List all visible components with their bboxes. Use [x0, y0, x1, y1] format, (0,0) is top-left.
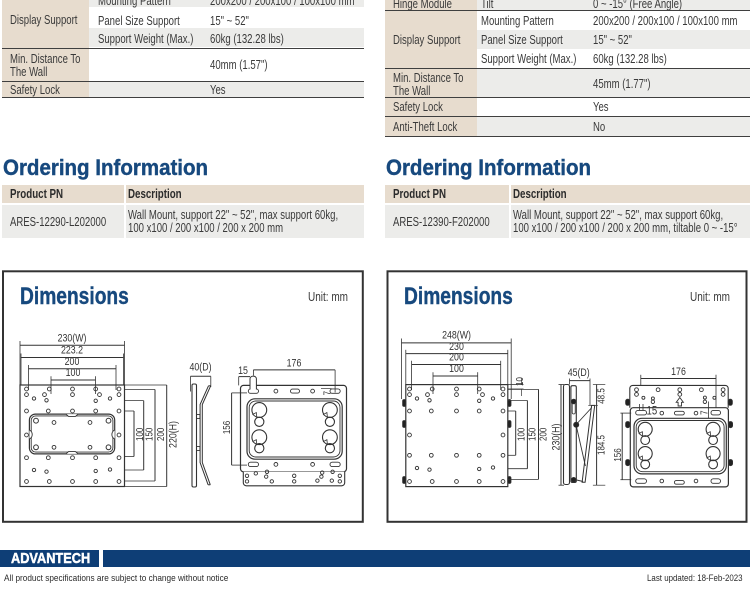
svg-text:48.5: 48.5 [596, 388, 607, 404]
svg-text:15: 15 [238, 365, 248, 377]
svg-text:156: 156 [612, 448, 623, 461]
svg-text:200: 200 [155, 428, 166, 441]
svg-text:176: 176 [671, 366, 686, 378]
svg-text:100: 100 [66, 367, 81, 379]
svg-text:220(H): 220(H) [168, 421, 180, 448]
svg-text:176: 176 [287, 358, 302, 370]
svg-text:40(D): 40(D) [190, 362, 212, 374]
svg-text:10: 10 [514, 377, 525, 386]
svg-text:230(H): 230(H) [551, 424, 563, 451]
svg-text:230(W): 230(W) [58, 333, 87, 345]
svg-text:200: 200 [65, 356, 80, 368]
svg-text:200: 200 [449, 352, 464, 364]
svg-text:100: 100 [449, 363, 464, 375]
svg-text:45(D): 45(D) [568, 367, 590, 379]
svg-text:200: 200 [538, 428, 549, 441]
svg-text:150: 150 [527, 428, 538, 441]
svg-text:100: 100 [516, 428, 527, 441]
svg-text:184.5: 184.5 [596, 435, 607, 455]
svg-text:15: 15 [647, 405, 658, 418]
svg-text:156: 156 [221, 421, 232, 434]
svg-text:7: 7 [321, 391, 332, 395]
svg-text:150: 150 [144, 428, 155, 441]
svg-text:7: 7 [698, 410, 709, 414]
